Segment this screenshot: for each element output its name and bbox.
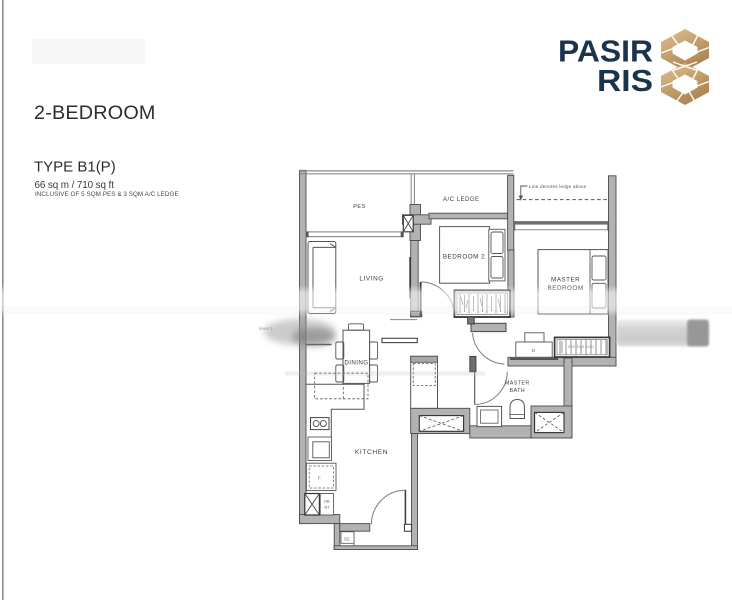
- svg-text:DINING: DINING: [344, 360, 368, 367]
- svg-text:MASTER: MASTER: [551, 277, 580, 284]
- svg-text:SC: SC: [344, 537, 350, 542]
- svg-text:RIS: RIS: [597, 63, 653, 98]
- svg-text:INCLUSIVE OF 5 SQM PES & 3 SQM: INCLUSIVE OF 5 SQM PES & 3 SQM A/C LEDGE: [35, 191, 179, 198]
- svg-text:BEDROOM 2: BEDROOM 2: [443, 254, 485, 261]
- svg-text:D: D: [532, 348, 535, 353]
- svg-text:LIVING: LIVING: [359, 275, 384, 282]
- svg-text:BATH: BATH: [510, 388, 526, 394]
- svg-text:2-BEDROOM: 2-BEDROOM: [34, 102, 156, 124]
- svg-text:/ST: /ST: [324, 505, 331, 510]
- svg-text:MASTER: MASTER: [505, 380, 530, 386]
- svg-text:F: F: [318, 476, 321, 481]
- svg-text:TYPE B1(P): TYPE B1(P): [34, 159, 116, 176]
- svg-text:DB: DB: [324, 499, 330, 504]
- svg-text:A/C LEDGE: A/C LEDGE: [443, 197, 480, 203]
- svg-text:66 sq m / 710 sq ft: 66 sq m / 710 sq ft: [35, 180, 115, 191]
- svg-text:Line denotes ledge above: Line denotes ledge above: [529, 184, 587, 189]
- svg-text:PES: PES: [353, 204, 366, 210]
- svg-text:window last: window last: [568, 344, 594, 349]
- svg-text:KITCHEN: KITCHEN: [355, 449, 388, 456]
